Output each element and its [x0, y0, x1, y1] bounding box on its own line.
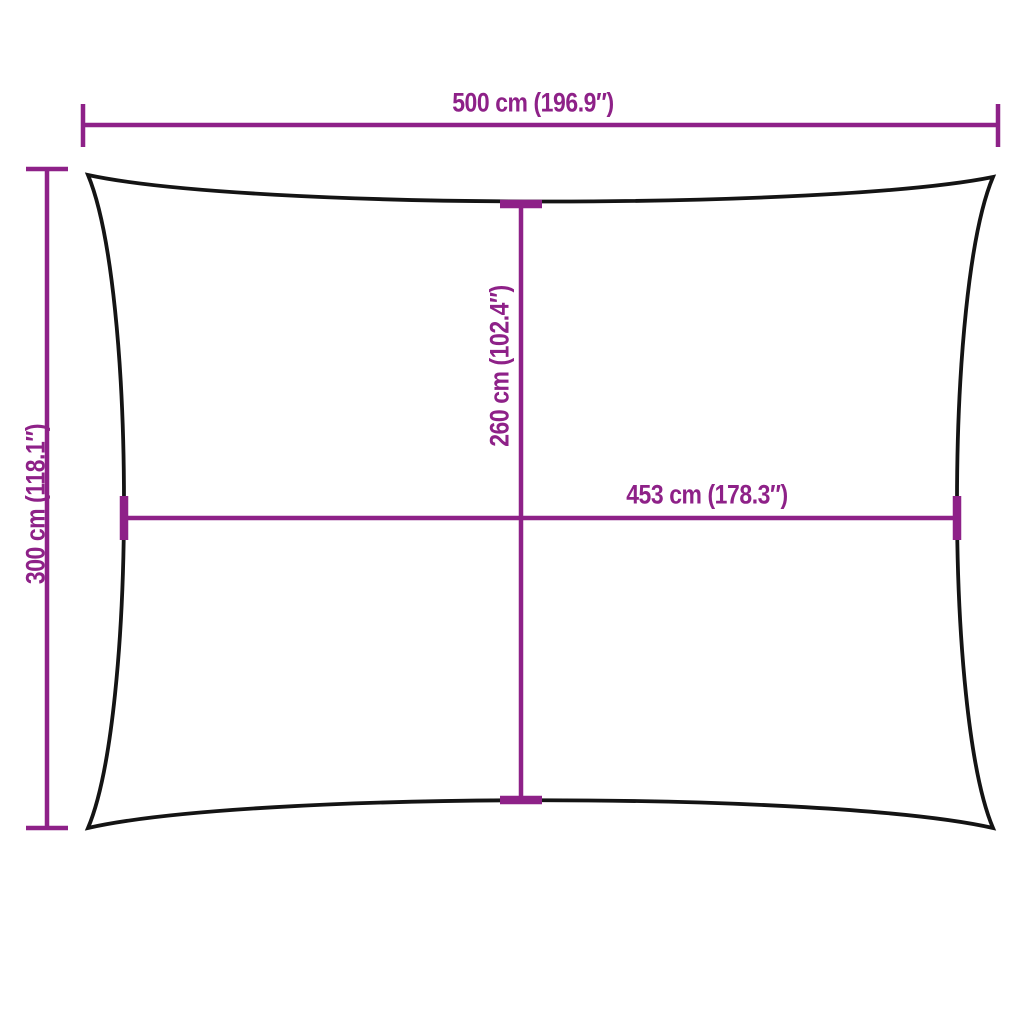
center-height-label: 260 cm (102.4″) [485, 285, 516, 447]
dimension-diagram: 500 cm (196.9″) 300 cm (118.1″) 260 cm (… [0, 0, 1024, 1024]
center-width-label: 453 cm (178.3″) [626, 480, 788, 511]
sail-outline [88, 175, 993, 828]
top-width-label: 500 cm (196.9″) [452, 88, 614, 119]
diagram-canvas [0, 0, 1024, 1024]
left-height-label: 300 cm (118.1″) [21, 424, 52, 584]
center-width-dimension [124, 496, 957, 540]
